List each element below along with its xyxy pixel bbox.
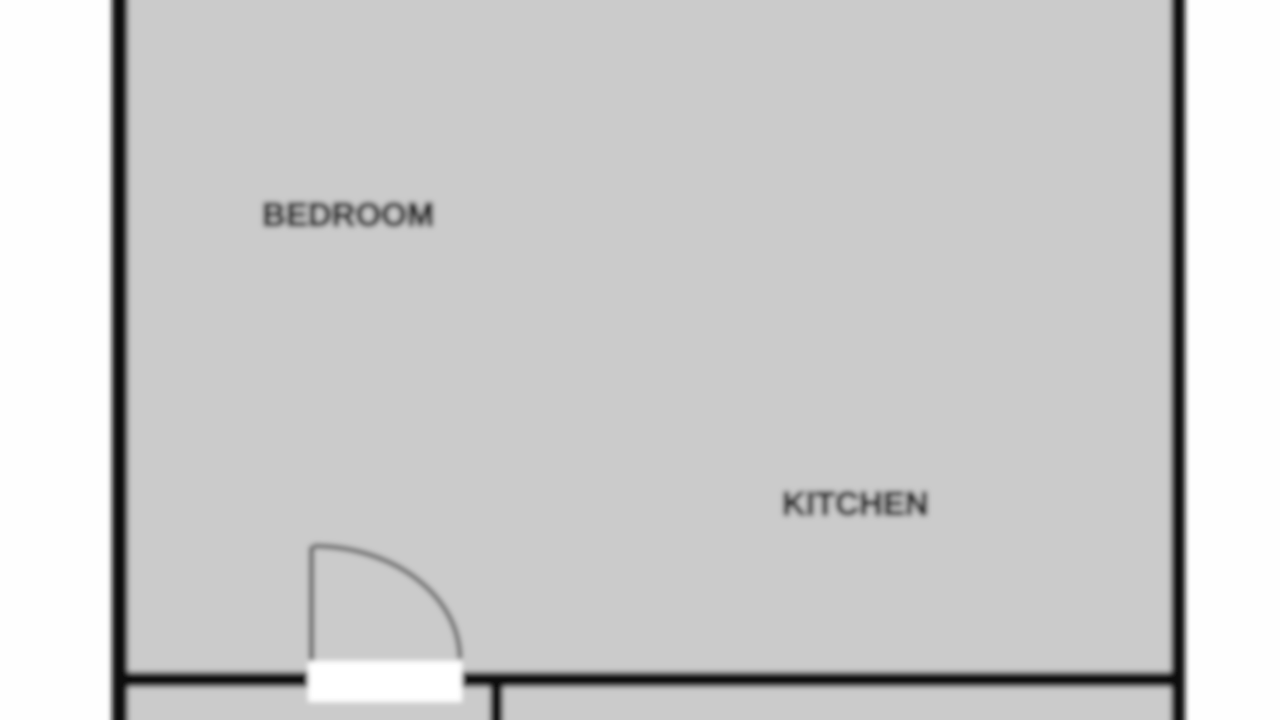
svg-text:KITCHEN: KITCHEN: [782, 485, 929, 522]
svg-text:BEDROOM: BEDROOM: [262, 196, 434, 233]
